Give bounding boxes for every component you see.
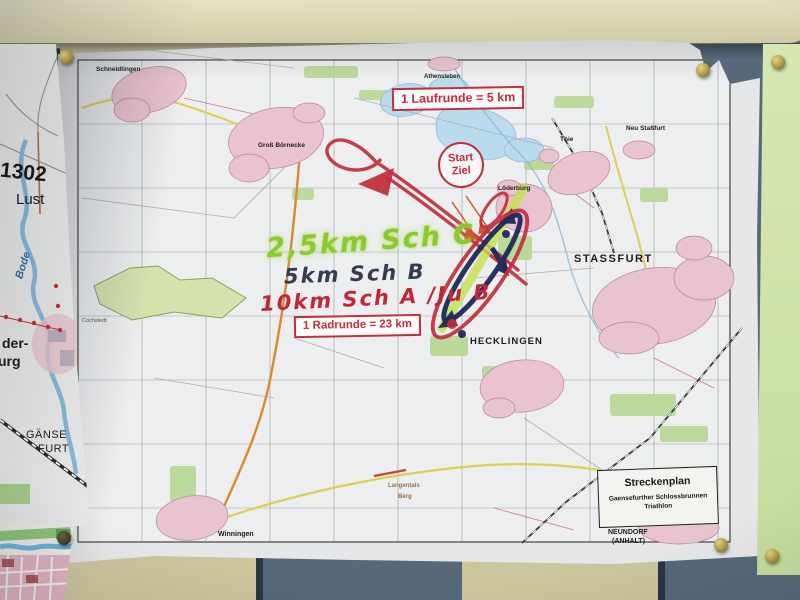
push-pin-bottom-left: [57, 531, 71, 545]
push-pin-strip-bottom: [765, 549, 779, 563]
run-lap-box: 1 Laufrunde = 5 km: [392, 86, 525, 111]
town-label-thie: Thie: [560, 137, 573, 144]
left-label-furt: FURT: [38, 444, 69, 455]
left-fragment-urg: urg: [0, 354, 21, 368]
finish-label: Ziel: [440, 164, 483, 179]
green-paper-strip: [757, 44, 800, 575]
town-label-gross-boernecke: Groß Börnecke: [258, 143, 305, 150]
push-pin-bottom-right: [714, 538, 728, 552]
town-label-hecklingen: HECKLINGEN: [470, 337, 543, 347]
bulletin-board-photo: Schneidlingen Groß Börnecke Athensleben …: [0, 0, 800, 600]
town-label-neundorf: NEUNDORF: [608, 529, 648, 536]
left-label-gaense: GÄNSE: [26, 430, 67, 441]
push-pin-top-left: [59, 50, 73, 64]
town-label-winningen: Winningen: [218, 531, 254, 538]
town-label-neu-stassfurt: Neu Staßfurt: [626, 126, 665, 133]
town-label-anhalt: (ANHALT): [612, 538, 645, 545]
bike-lap-box: 1 Radrunde = 23 km: [294, 314, 421, 338]
left-road-number: 1302: [0, 160, 48, 186]
town-label-stassfurt: STASSFURT: [574, 254, 653, 265]
left-label-lust: Lust: [16, 192, 44, 207]
town-label-schneidlingen: Schneidlingen: [96, 67, 140, 74]
push-pin-top-right: [696, 63, 710, 77]
hill-label-berg: Berg: [398, 494, 412, 500]
run-loop-red-blob: [447, 319, 457, 329]
town-label-loederburg: Löderburg: [498, 186, 531, 193]
triathlon-route-map-sheet: Schneidlingen Groß Börnecke Athensleben …: [54, 38, 760, 572]
push-pin-strip-top: [771, 55, 785, 69]
left-fragment-der: der-: [2, 336, 28, 350]
hill-label-langentals: Langentals: [388, 483, 420, 489]
town-label-cochstedt: Cochstedt: [82, 319, 107, 325]
town-label-athensleben: Athensleben: [424, 74, 460, 80]
legend-box: Streckenplan Gaensefurther Schlossbrunne…: [597, 466, 719, 528]
legend-title: Streckenplan: [598, 474, 716, 490]
board-top-beam: [0, 0, 800, 49]
